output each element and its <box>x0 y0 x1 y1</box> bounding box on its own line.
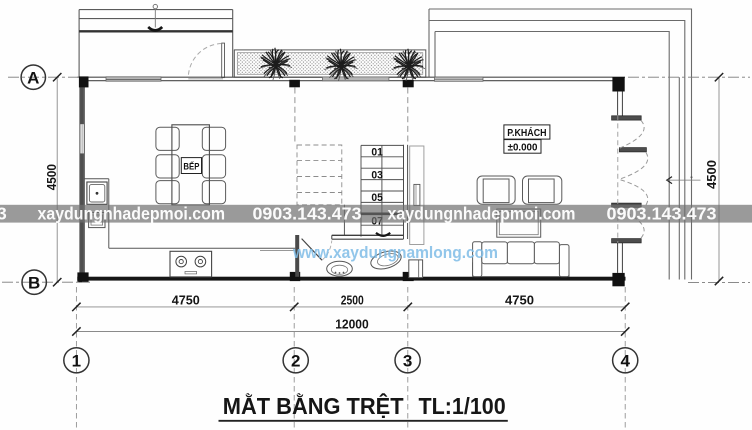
svg-text:03: 03 <box>371 170 383 182</box>
svg-text:2500: 2500 <box>341 293 364 308</box>
svg-text:xaydungnhadepmoi.com: xaydungnhadepmoi.com <box>38 204 226 224</box>
svg-text:01: 01 <box>371 147 383 159</box>
svg-text:MẰT BẰNG TRỆT: MẰT BẰNG TRỆT <box>223 392 404 419</box>
svg-text:TL:1/100: TL:1/100 <box>419 393 506 419</box>
svg-text:www.xaydungnamlong.com: www.xaydungnamlong.com <box>292 244 498 262</box>
svg-text:4750: 4750 <box>172 293 200 308</box>
svg-text:P.KHÁCH: P.KHÁCH <box>507 126 546 139</box>
svg-text:4500: 4500 <box>704 160 719 189</box>
svg-text:4500: 4500 <box>44 164 59 190</box>
svg-text:BẾP: BẾP <box>183 162 200 173</box>
svg-text:12000: 12000 <box>335 317 369 332</box>
svg-text:3: 3 <box>403 351 412 370</box>
svg-text:xaydungnhadepmoi.com: xaydungnhadepmoi.com <box>388 204 576 224</box>
svg-text:3: 3 <box>0 204 7 224</box>
svg-text:05: 05 <box>371 192 383 204</box>
svg-text:4750: 4750 <box>505 293 534 308</box>
svg-text:±0.000: ±0.000 <box>508 141 538 153</box>
svg-text:2: 2 <box>291 351 300 370</box>
svg-text:4: 4 <box>620 351 630 370</box>
svg-text:A: A <box>27 68 39 87</box>
svg-text:1: 1 <box>72 351 81 370</box>
svg-text:B: B <box>28 273 40 292</box>
svg-text:0903.143.473: 0903.143.473 <box>253 204 362 224</box>
svg-text:0903.143.473: 0903.143.473 <box>607 204 717 224</box>
